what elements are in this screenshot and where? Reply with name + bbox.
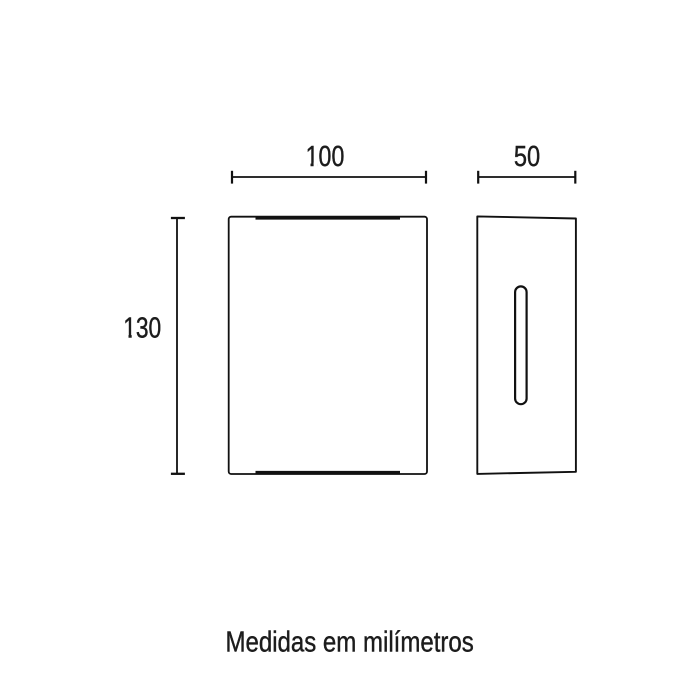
- svg-text:50: 50: [514, 140, 540, 173]
- svg-text:Medidas em milímetros: Medidas em milímetros: [225, 626, 473, 658]
- svg-text:100: 100: [306, 139, 345, 172]
- svg-text:130: 130: [123, 313, 161, 344]
